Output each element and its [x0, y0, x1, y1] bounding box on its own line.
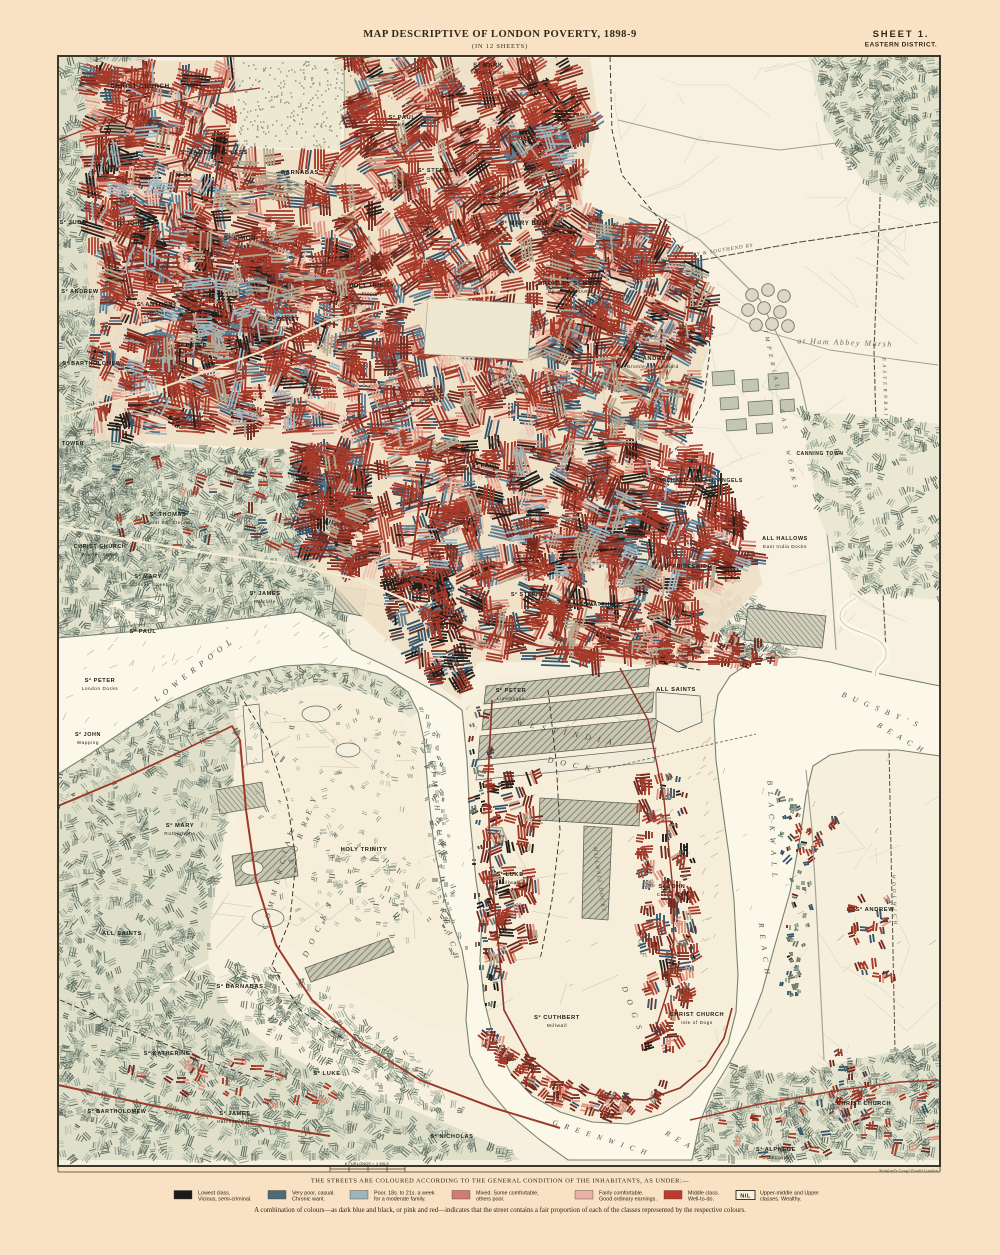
- svg-text:Old Ford: Old Ford: [390, 122, 413, 128]
- svg-text:S² ANDREW: S² ANDREW: [61, 288, 99, 295]
- svg-text:S² BARTHOLOMEW: S² BARTHOLOMEW: [87, 1109, 146, 1115]
- svg-text:S² MICHAEL AND ALL ANGELS: S² MICHAEL AND ALL ANGELS: [651, 478, 743, 484]
- svg-text:Millwall: Millwall: [500, 880, 520, 886]
- svg-text:S² PAUL: S² PAUL: [389, 114, 416, 121]
- svg-text:S² ANTHONY: S² ANTHONY: [137, 301, 178, 308]
- svg-text:classes. Wealthy.: classes. Wealthy.: [760, 1197, 801, 1203]
- svg-text:O: O: [609, 244, 614, 252]
- svg-text:S² PETER: S² PETER: [85, 677, 116, 684]
- svg-text:CHRIST CHURCH: CHRIST CHURCH: [74, 544, 127, 550]
- svg-text:S² PAUL: S² PAUL: [472, 462, 499, 469]
- svg-text:S² NICHOLAS: S² NICHOLAS: [431, 1133, 474, 1140]
- svg-text:HOLY TRINITY: HOLY TRINITY: [349, 283, 394, 289]
- svg-text:S² JOHN: S² JOHN: [75, 732, 101, 738]
- svg-text:Arbour Sq. Stepney: Arbour Sq. Stepney: [143, 520, 194, 525]
- svg-text:Good ordinary earnings.: Good ordinary earnings.: [599, 1197, 657, 1203]
- svg-text:TOWER: TOWER: [62, 441, 84, 447]
- svg-text:S² LUKE: S² LUKE: [313, 1070, 340, 1077]
- svg-text:Zelotes: Zelotes: [230, 244, 250, 250]
- svg-text:BROMLEY S² MARY: BROMLEY S² MARY: [538, 280, 602, 287]
- svg-text:CHRIST CHURCH: CHRIST CHURCH: [110, 83, 169, 90]
- svg-text:(IN 12 SHEETS): (IN 12 SHEETS): [472, 43, 528, 50]
- svg-text:S² BENET: S² BENET: [268, 316, 300, 323]
- svg-text:S² JAMES THE LESS: S² JAMES THE LESS: [180, 149, 248, 156]
- svg-text:Stepney: Stepney: [181, 351, 202, 356]
- svg-text:Johnson Street: Johnson Street: [128, 582, 167, 587]
- svg-text:S² MARY BOW: S² MARY BOW: [500, 220, 548, 227]
- svg-text:Cubitt Town: Cubitt Town: [657, 892, 688, 897]
- svg-text:EASTERN DISTRICT.: EASTERN DISTRICT.: [865, 42, 937, 49]
- svg-text:Stepney: Stepney: [273, 325, 295, 331]
- svg-text:S² MARY: S² MARY: [134, 573, 162, 580]
- svg-text:ALL SAINTS: ALL SAINTS: [656, 687, 696, 693]
- svg-text:Old Ford: Old Ford: [426, 176, 449, 182]
- svg-text:S² LUKE: S² LUKE: [496, 871, 523, 878]
- svg-text:8 FURLONGS = 1 MILE: 8 FURLONGS = 1 MILE: [345, 1162, 390, 1166]
- svg-text:S² FRIDESWIDE: S² FRIDESWIDE: [665, 564, 712, 570]
- svg-text:S² JAMES: S² JAMES: [249, 590, 280, 597]
- svg-text:S² STEPHEN: S² STEPHEN: [418, 167, 459, 174]
- svg-text:S² THOMAS: S² THOMAS: [150, 511, 187, 518]
- svg-text:S² JUDE: S² JUDE: [59, 219, 86, 226]
- svg-text:Ratcliffe: Ratcliffe: [254, 599, 276, 604]
- svg-text:Wapping: Wapping: [77, 740, 99, 745]
- svg-text:S² SIMON: S² SIMON: [224, 235, 256, 242]
- svg-text:S² PETER: S² PETER: [496, 687, 527, 694]
- svg-text:S² STEPHEN: S² STEPHEN: [511, 592, 549, 598]
- svg-text:S² BARNABAS: S² BARNABAS: [216, 983, 263, 990]
- svg-text:S² ANDREW: S² ANDREW: [634, 355, 673, 362]
- svg-text:Limehouse: Limehouse: [384, 586, 413, 592]
- svg-text:Bromley S² Leonard: Bromley S² Leonard: [627, 364, 679, 369]
- svg-text:Victoria Park: Victoria Park: [471, 70, 506, 76]
- svg-text:others poor.: others poor.: [476, 1197, 504, 1203]
- svg-text:NIL: NIL: [740, 1194, 751, 1200]
- svg-text:S² ALPHEGE: S² ALPHEGE: [756, 1146, 796, 1153]
- svg-text:S² PETER: S² PETER: [177, 342, 208, 349]
- svg-text:THE STREETS ARE COLOURED ACCOR: THE STREETS ARE COLOURED ACCORDING TO TH…: [311, 1178, 689, 1185]
- svg-text:East India Docks: East India Docks: [763, 544, 807, 549]
- svg-text:CANNING TOWN: CANNING TOWN: [796, 451, 843, 457]
- svg-text:SHEET 1.: SHEET 1.: [873, 29, 930, 40]
- svg-text:CHRIST CHURCH: CHRIST CHURCH: [837, 1101, 891, 1107]
- svg-text:S² MARK: S² MARK: [473, 62, 503, 69]
- svg-text:HOLY TRINITY: HOLY TRINITY: [341, 847, 388, 853]
- svg-text:for a moderate family.: for a moderate family.: [374, 1197, 426, 1203]
- svg-text:Vicious, semi-criminal.: Vicious, semi-criminal.: [198, 1197, 252, 1203]
- svg-text:Watney Street: Watney Street: [82, 552, 119, 557]
- svg-text:S² ANNE: S² ANNE: [384, 577, 413, 584]
- svg-text:Rotherhithe: Rotherhithe: [164, 831, 195, 837]
- svg-text:A combination of colours—as da: A combination of colours—as dark blue an…: [254, 1207, 746, 1214]
- svg-text:Stepney: Stepney: [146, 310, 168, 316]
- svg-text:CHRIST CHURCH: CHRIST CHURCH: [670, 1012, 724, 1018]
- svg-text:S² KATHERINE: S² KATHERINE: [144, 1050, 191, 1057]
- svg-text:S² JOHN: S² JOHN: [117, 220, 145, 227]
- svg-text:Hatcham Park: Hatcham Park: [217, 1119, 253, 1124]
- svg-text:S² MARY: S² MARY: [166, 822, 194, 829]
- svg-text:S² PAUL: S² PAUL: [130, 628, 157, 635]
- svg-text:S² JAMES: S² JAMES: [219, 1110, 250, 1117]
- svg-text:S² MATTHIAS: S² MATTHIAS: [580, 602, 621, 608]
- svg-text:Chronic want.: Chronic want.: [292, 1197, 325, 1203]
- svg-text:Stanford’s Geog¹ Estab¹ London: Stanford’s Geog¹ Estab¹ London: [879, 1168, 939, 1173]
- svg-text:S² BARTHOLOMEW: S² BARTHOLOMEW: [62, 361, 121, 367]
- svg-text:S² JOHN: S² JOHN: [659, 883, 686, 890]
- svg-text:Bow Common: Bow Common: [468, 471, 503, 476]
- svg-text:ALL HALLOWS: ALL HALLOWS: [762, 536, 808, 542]
- svg-text:Greenwich: Greenwich: [762, 1155, 789, 1160]
- svg-text:Op S² LEONARD: Op S² LEONARD: [548, 289, 593, 295]
- svg-text:London Docks: London Docks: [82, 686, 119, 691]
- svg-text:S² ANDREW: S² ANDREW: [856, 906, 895, 913]
- svg-text:Isle of Dogs: Isle of Dogs: [681, 1020, 713, 1025]
- svg-text:ALL SAINTS: ALL SAINTS: [102, 931, 142, 937]
- svg-text:Millwall: Millwall: [547, 1023, 567, 1029]
- svg-text:Stepney: Stepney: [361, 291, 382, 296]
- svg-text:Well-to-do.: Well-to-do.: [688, 1197, 714, 1203]
- svg-text:MAP DESCRIPTIVE OF LONDON: MAP DESCRIPTIVE OF LONDON POVERTY, 1898-…: [363, 29, 637, 40]
- svg-text:Limehouse: Limehouse: [497, 696, 525, 701]
- svg-text:BARNABAS: BARNABAS: [281, 170, 319, 176]
- svg-text:S² CUTHBERT: S² CUTHBERT: [534, 1014, 580, 1021]
